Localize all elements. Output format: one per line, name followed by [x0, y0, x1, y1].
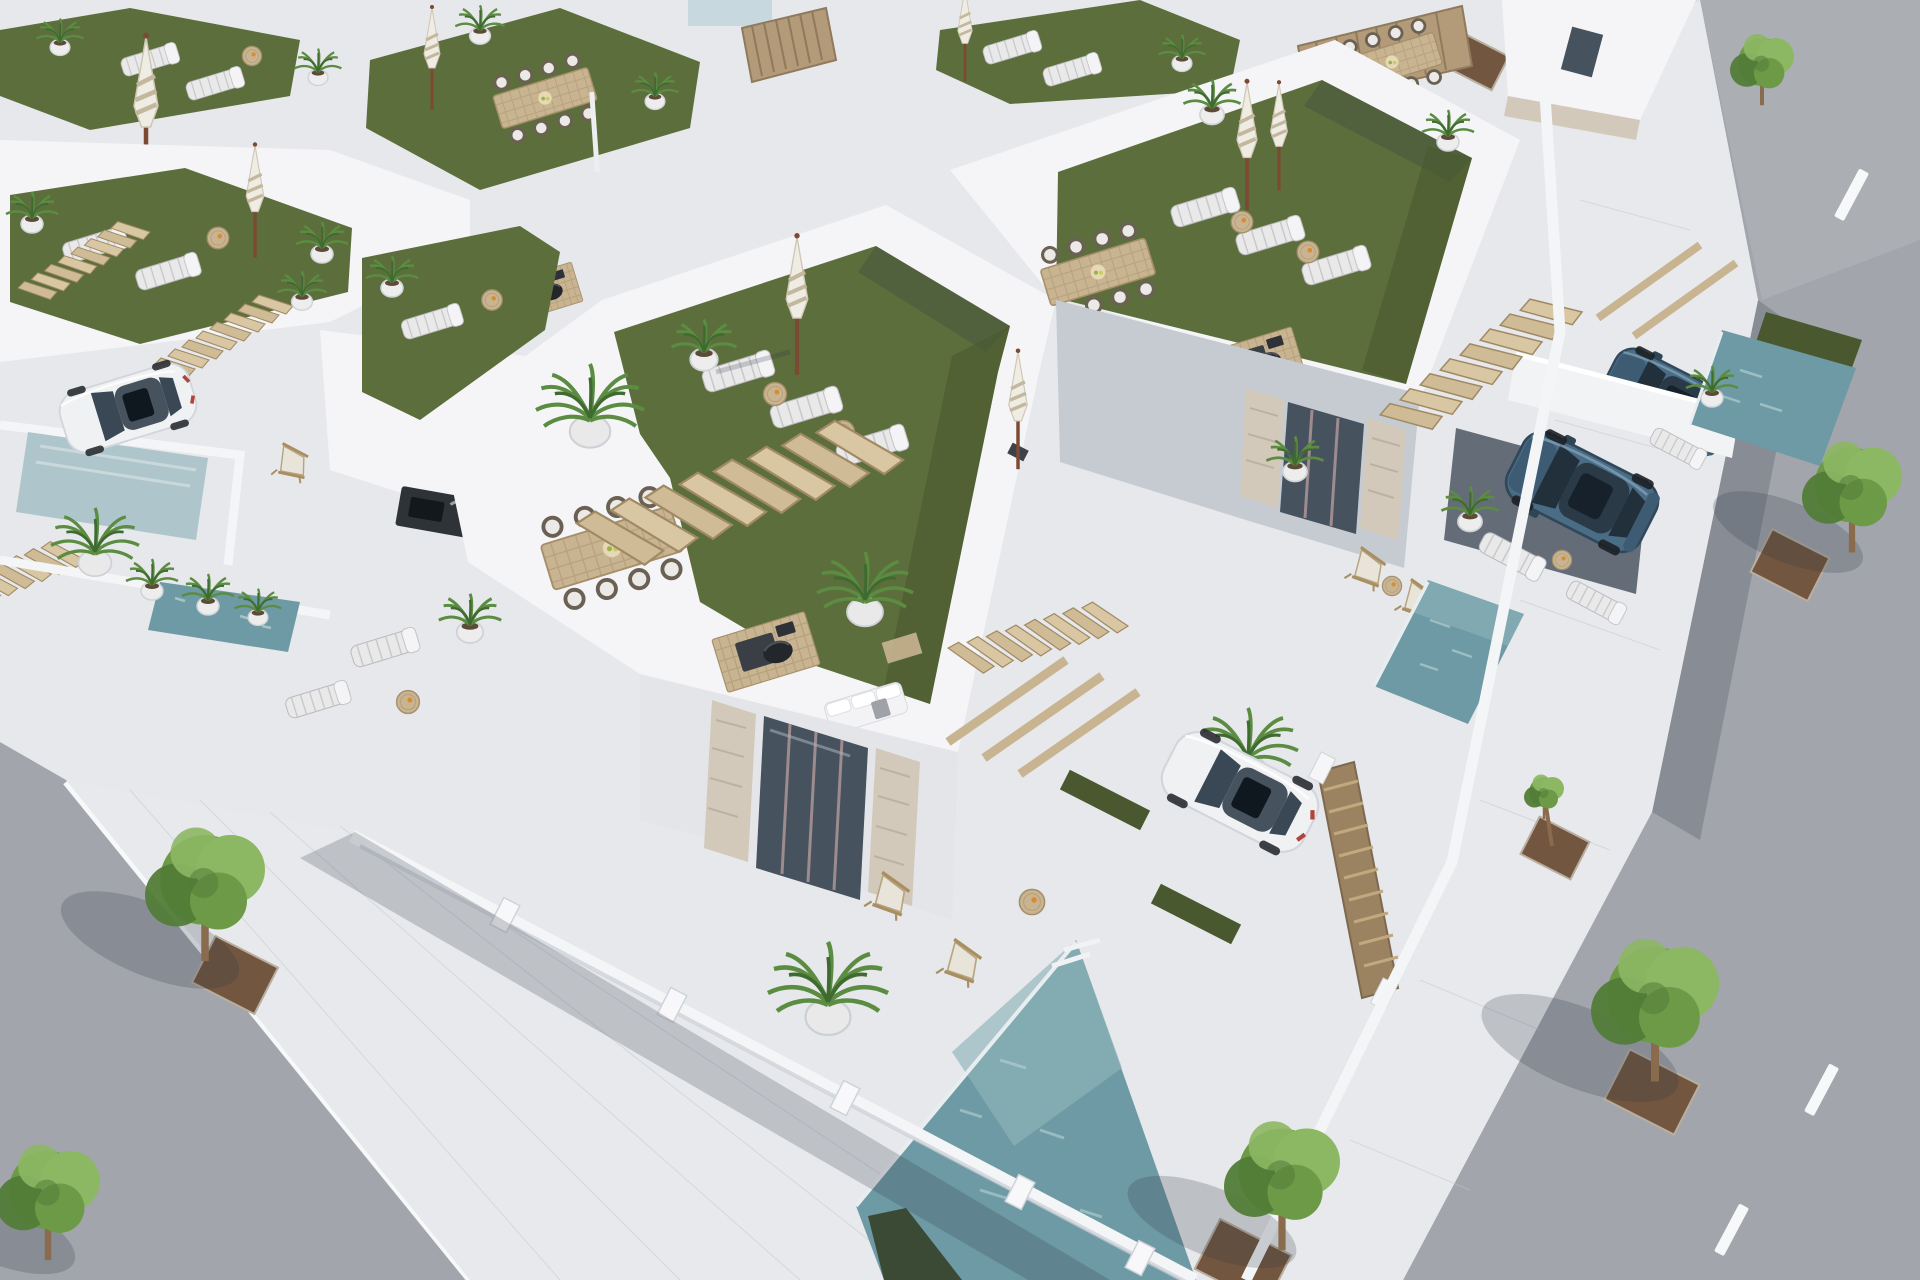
glass-balustrade — [688, 0, 772, 26]
architectural-render — [0, 0, 1920, 1280]
